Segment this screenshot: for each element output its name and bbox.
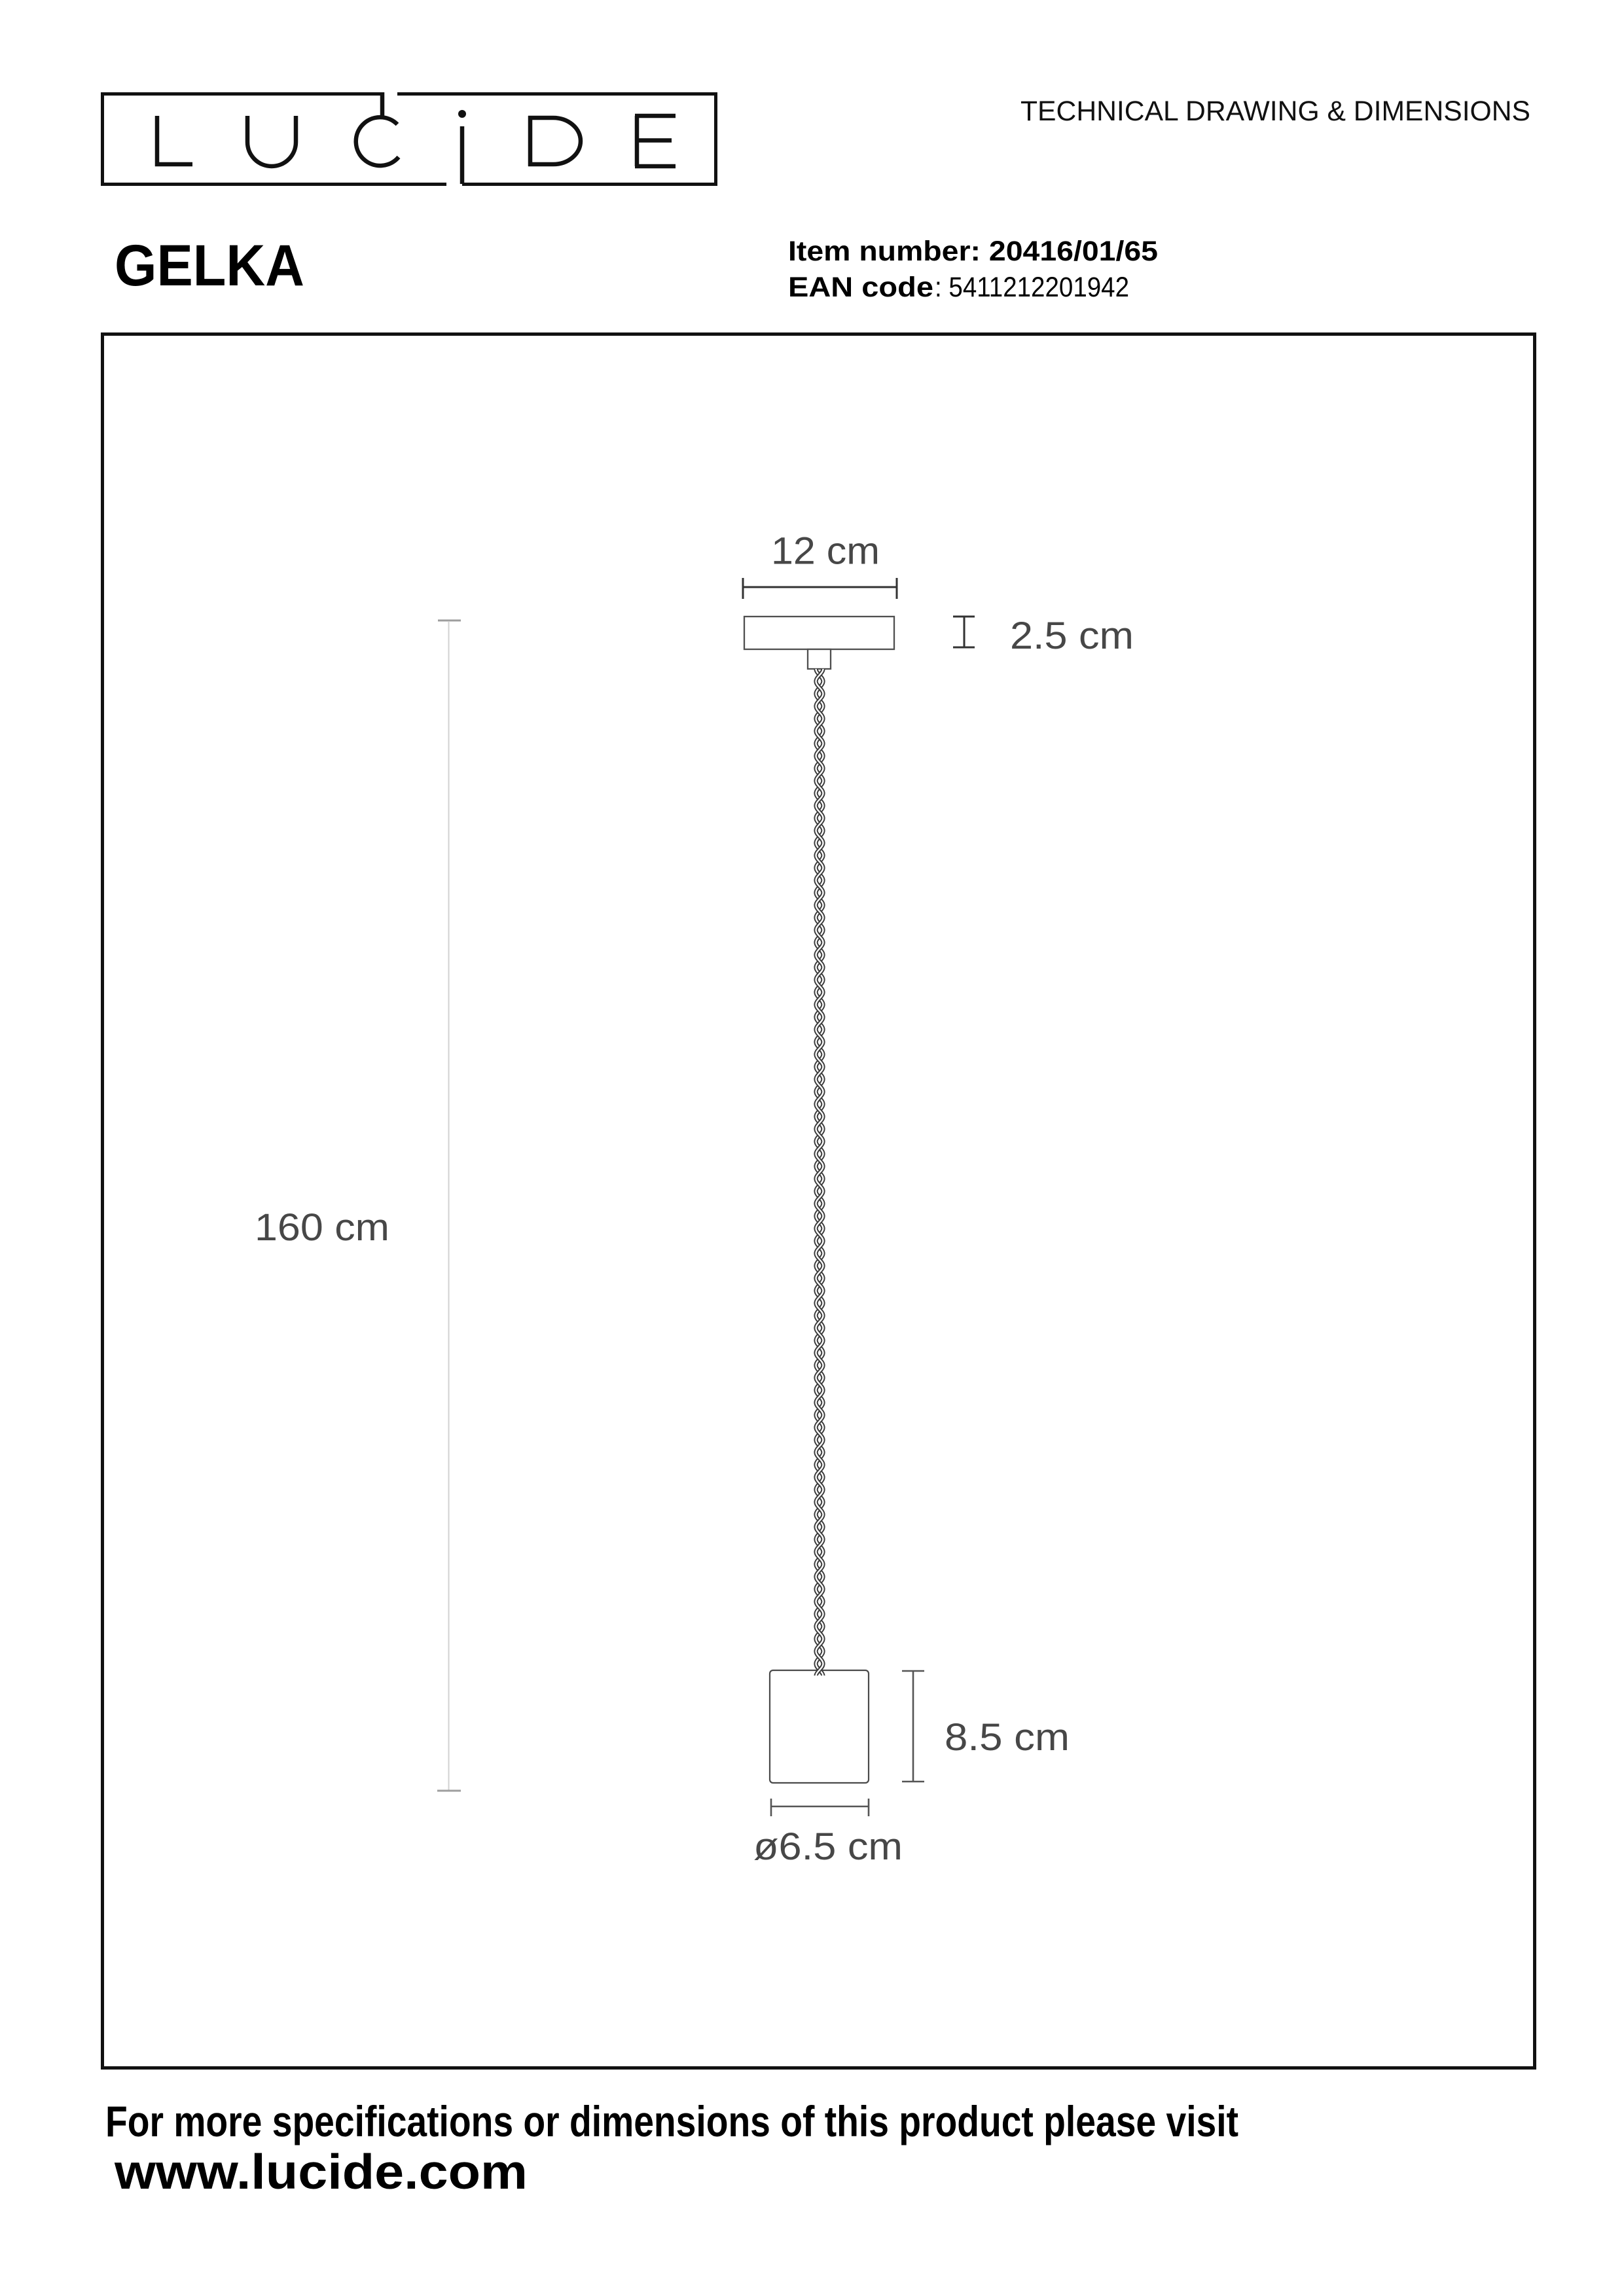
svg-text:EAN code: EAN code [788,272,933,303]
svg-text:2.5 cm: 2.5 cm [1010,615,1134,657]
svg-text:GELKA: GELKA [115,232,304,298]
svg-text:: 5411212201942: : 5411212201942 [935,272,1129,303]
svg-text:12 cm: 12 cm [771,530,880,573]
svg-text:160 cm: 160 cm [255,1206,389,1249]
svg-text:Item number: 20416/01/65: Item number: 20416/01/65 [788,236,1158,267]
svg-text:ø6.5 cm: ø6.5 cm [753,1825,903,1868]
svg-text:8.5 cm: 8.5 cm [945,1716,1070,1759]
svg-text:www.lucide.com: www.lucide.com [114,2144,528,2199]
svg-text:For more specifications or dim: For more specifications or dimensions of… [105,2097,1238,2145]
svg-text:TECHNICAL DRAWING & DIMENSIONS: TECHNICAL DRAWING & DIMENSIONS [1020,96,1530,127]
